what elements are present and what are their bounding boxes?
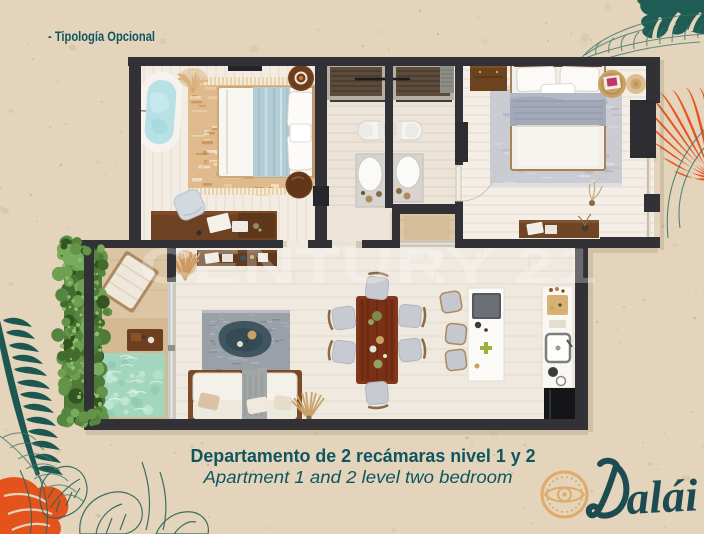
svg-text:CENTURY 21: CENTURY 21	[139, 238, 597, 294]
svg-text:- Tipología Opcional: - Tipología Opcional	[48, 28, 155, 44]
svg-text:Departamento de 2 recámaras ni: Departamento de 2 recámaras nivel 1 y 2	[191, 445, 536, 466]
svg-text:Apartment 1 and 2 level two be: Apartment 1 and 2 level two bedroom	[202, 467, 512, 487]
svg-text:alái: alái	[625, 469, 699, 524]
